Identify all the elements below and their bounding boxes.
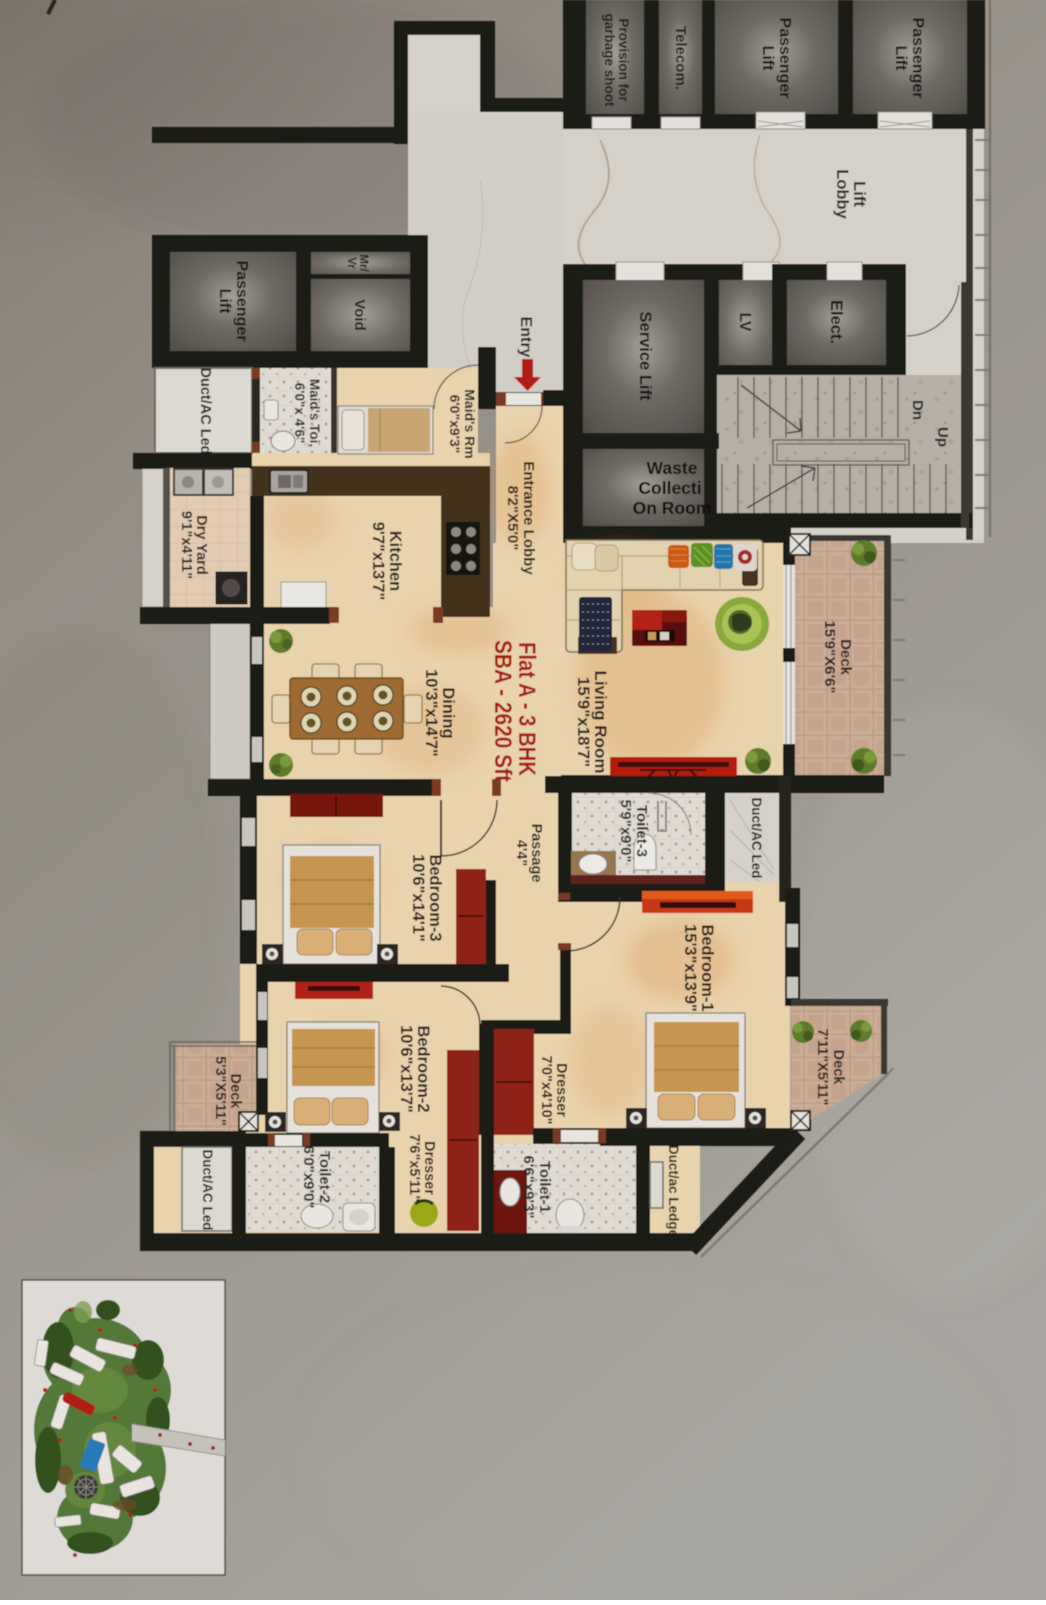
svg-text:Dn: Dn xyxy=(909,400,926,420)
svg-text:Deck: Deck xyxy=(227,1074,243,1110)
svg-text:Lift: Lift xyxy=(850,181,868,207)
svg-text:Void: Void xyxy=(351,299,368,330)
svg-text:9'1"x4'11": 9'1"x4'11" xyxy=(178,511,194,579)
svg-text:Duct/ac Ledge: Duct/ac Ledge xyxy=(666,1145,681,1238)
svg-text:Dresser: Dresser xyxy=(421,1141,437,1195)
svg-text:Bedroom-2: Bedroom-2 xyxy=(414,1025,432,1112)
svg-text:Elect.: Elect. xyxy=(827,300,845,344)
svg-text:Toilet-1: Toilet-1 xyxy=(536,1161,553,1213)
svg-text:Bedroom-1: Bedroom-1 xyxy=(698,924,716,1011)
svg-text:Passenger: Passenger xyxy=(909,18,926,99)
svg-text:Service Lift: Service Lift xyxy=(636,312,654,401)
svg-text:Passage: Passage xyxy=(528,824,544,883)
svg-text:6'0"x 4'6": 6'0"x 4'6" xyxy=(292,383,307,444)
svg-text:SBA - 2620 Sft: SBA - 2620 Sft xyxy=(489,640,516,782)
svg-text:Collecti: Collecti xyxy=(638,478,701,498)
svg-text:15'3"x13'9": 15'3"x13'9" xyxy=(681,924,699,1012)
svg-text:15'9"x18'7": 15'9"x18'7" xyxy=(574,677,593,767)
svg-text:Lift: Lift xyxy=(216,289,233,315)
svg-text:6'0"x9'0": 6'0"x9'0" xyxy=(300,1145,317,1208)
svg-text:Deck: Deck xyxy=(830,1050,846,1086)
svg-text:Deck: Deck xyxy=(837,639,854,676)
svg-text:6'0"x9'3": 6'0"x9'3" xyxy=(447,395,463,454)
svg-text:Entry: Entry xyxy=(517,317,534,358)
svg-text:7'0"x4'10": 7'0"x4'10" xyxy=(538,1055,554,1124)
svg-text:Toilet-2: Toilet-2 xyxy=(316,1151,333,1203)
svg-text:10'6"x14'1": 10'6"x14'1" xyxy=(409,854,427,942)
svg-text:Duct/AC Led: Duct/AC Led xyxy=(197,368,213,455)
svg-text:5'9"x9'0": 5'9"x9'0" xyxy=(617,799,634,862)
svg-text:7'6"x5'11": 7'6"x5'11" xyxy=(406,1134,422,1202)
svg-text:Passenger: Passenger xyxy=(233,261,250,342)
svg-text:Dresser: Dresser xyxy=(553,1063,569,1117)
svg-text:7'11"X5'11": 7'11"X5'11" xyxy=(814,1028,830,1105)
svg-text:garbage shoot: garbage shoot xyxy=(602,13,617,107)
svg-text:10'3"x14'7": 10'3"x14'7" xyxy=(422,669,440,757)
svg-text:Toilet-3: Toilet-3 xyxy=(633,805,650,857)
svg-text:Waste: Waste xyxy=(647,458,698,478)
svg-text:9'7"x13'7": 9'7"x13'7" xyxy=(369,522,387,601)
svg-text:LV: LV xyxy=(736,313,753,332)
svg-text:Duct/AC Led: Duct/AC Led xyxy=(749,798,764,879)
svg-text:6'6"x9'3": 6'6"x9'3" xyxy=(520,1155,537,1218)
svg-text:Lift: Lift xyxy=(759,46,776,72)
svg-text:Telecom.: Telecom. xyxy=(672,26,689,90)
svg-text:15'9"X6'6": 15'9"X6'6" xyxy=(821,620,838,693)
svg-text:Dining: Dining xyxy=(439,687,457,738)
svg-text:5'3"X5'11": 5'3"X5'11" xyxy=(212,1056,228,1126)
svg-text:Bedroom-3: Bedroom-3 xyxy=(426,854,444,941)
svg-text:8'2"X5'0": 8'2"X5'0" xyxy=(504,486,521,551)
svg-text:Duct/AC Led: Duct/AC Led xyxy=(200,1150,215,1231)
svg-text:10'6"x13'7": 10'6"x13'7" xyxy=(397,1025,415,1113)
svg-text:Passenger: Passenger xyxy=(776,18,793,99)
svg-text:Lobby: Lobby xyxy=(833,169,851,219)
svg-text:Lift: Lift xyxy=(892,46,909,72)
svg-text:Entrance Lobby: Entrance Lobby xyxy=(520,461,537,575)
svg-text:On Room: On Room xyxy=(633,498,712,518)
svg-text:Dry Yard: Dry Yard xyxy=(193,515,209,574)
svg-text:4'4": 4'4" xyxy=(513,840,529,866)
svg-text:Up: Up xyxy=(934,427,951,447)
svg-text:Provision for: Provision for xyxy=(616,18,631,102)
svg-text:Kitchen: Kitchen xyxy=(386,531,404,592)
svg-text:Maid's Toi,: Maid's Toi, xyxy=(307,379,322,447)
svg-text:Maid's Rm: Maid's Rm xyxy=(462,389,478,458)
svg-text:Flat A - 3 BHK: Flat A - 3 BHK xyxy=(513,642,540,777)
